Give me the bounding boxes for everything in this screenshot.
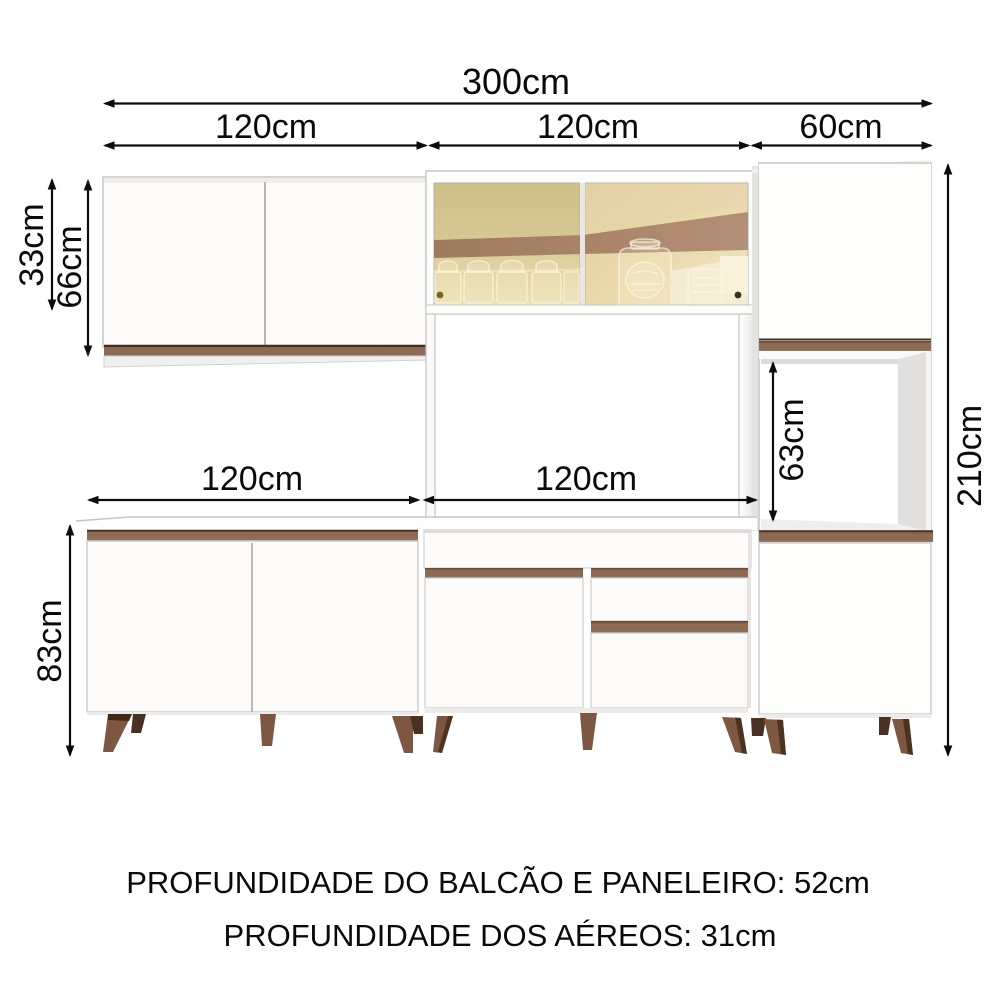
svg-text:83cm: 83cm bbox=[31, 599, 69, 682]
svg-text:66cm: 66cm bbox=[51, 225, 89, 308]
svg-text:PROFUNDIDADE DO BALCÃO E PANEL: PROFUNDIDADE DO BALCÃO E PANELEIRO: 52cm bbox=[126, 865, 870, 900]
svg-text:120cm: 120cm bbox=[215, 108, 317, 146]
svg-text:300cm: 300cm bbox=[462, 61, 570, 102]
svg-text:60cm: 60cm bbox=[799, 108, 882, 146]
svg-text:33cm: 33cm bbox=[13, 203, 51, 286]
svg-text:210cm: 210cm bbox=[951, 405, 989, 507]
svg-text:120cm: 120cm bbox=[201, 460, 303, 498]
svg-text:63cm: 63cm bbox=[773, 398, 811, 481]
svg-text:PROFUNDIDADE DOS AÉREOS: 31cm: PROFUNDIDADE DOS AÉREOS: 31cm bbox=[224, 918, 777, 953]
svg-text:120cm: 120cm bbox=[537, 108, 639, 146]
svg-text:120cm: 120cm bbox=[535, 460, 637, 498]
